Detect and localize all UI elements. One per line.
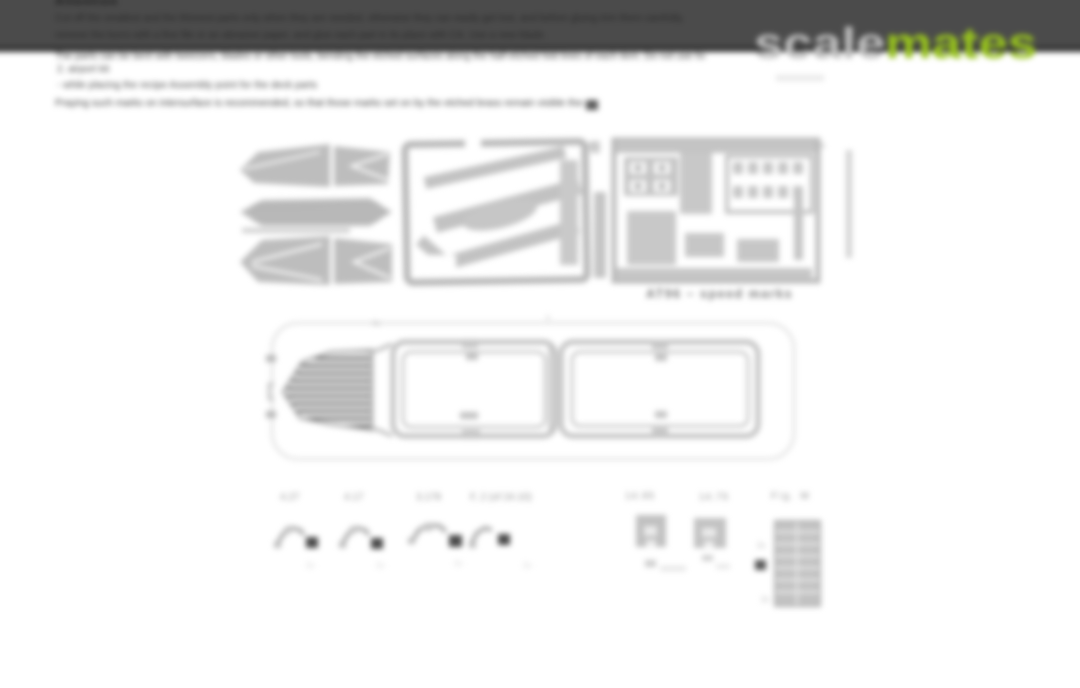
svg-text:x: x bbox=[546, 313, 550, 322]
svg-text:4x: 4x bbox=[372, 319, 380, 328]
svg-text:a: a bbox=[588, 140, 593, 150]
svg-text:2x: 2x bbox=[306, 561, 314, 570]
svg-text:a: a bbox=[820, 140, 825, 150]
svg-text:2x: 2x bbox=[761, 595, 769, 604]
svg-text:2x: 2x bbox=[376, 561, 384, 570]
svg-text:2x: 2x bbox=[757, 541, 765, 550]
svg-text:2x: 2x bbox=[454, 559, 462, 568]
svg-text:2x: 2x bbox=[523, 561, 531, 570]
